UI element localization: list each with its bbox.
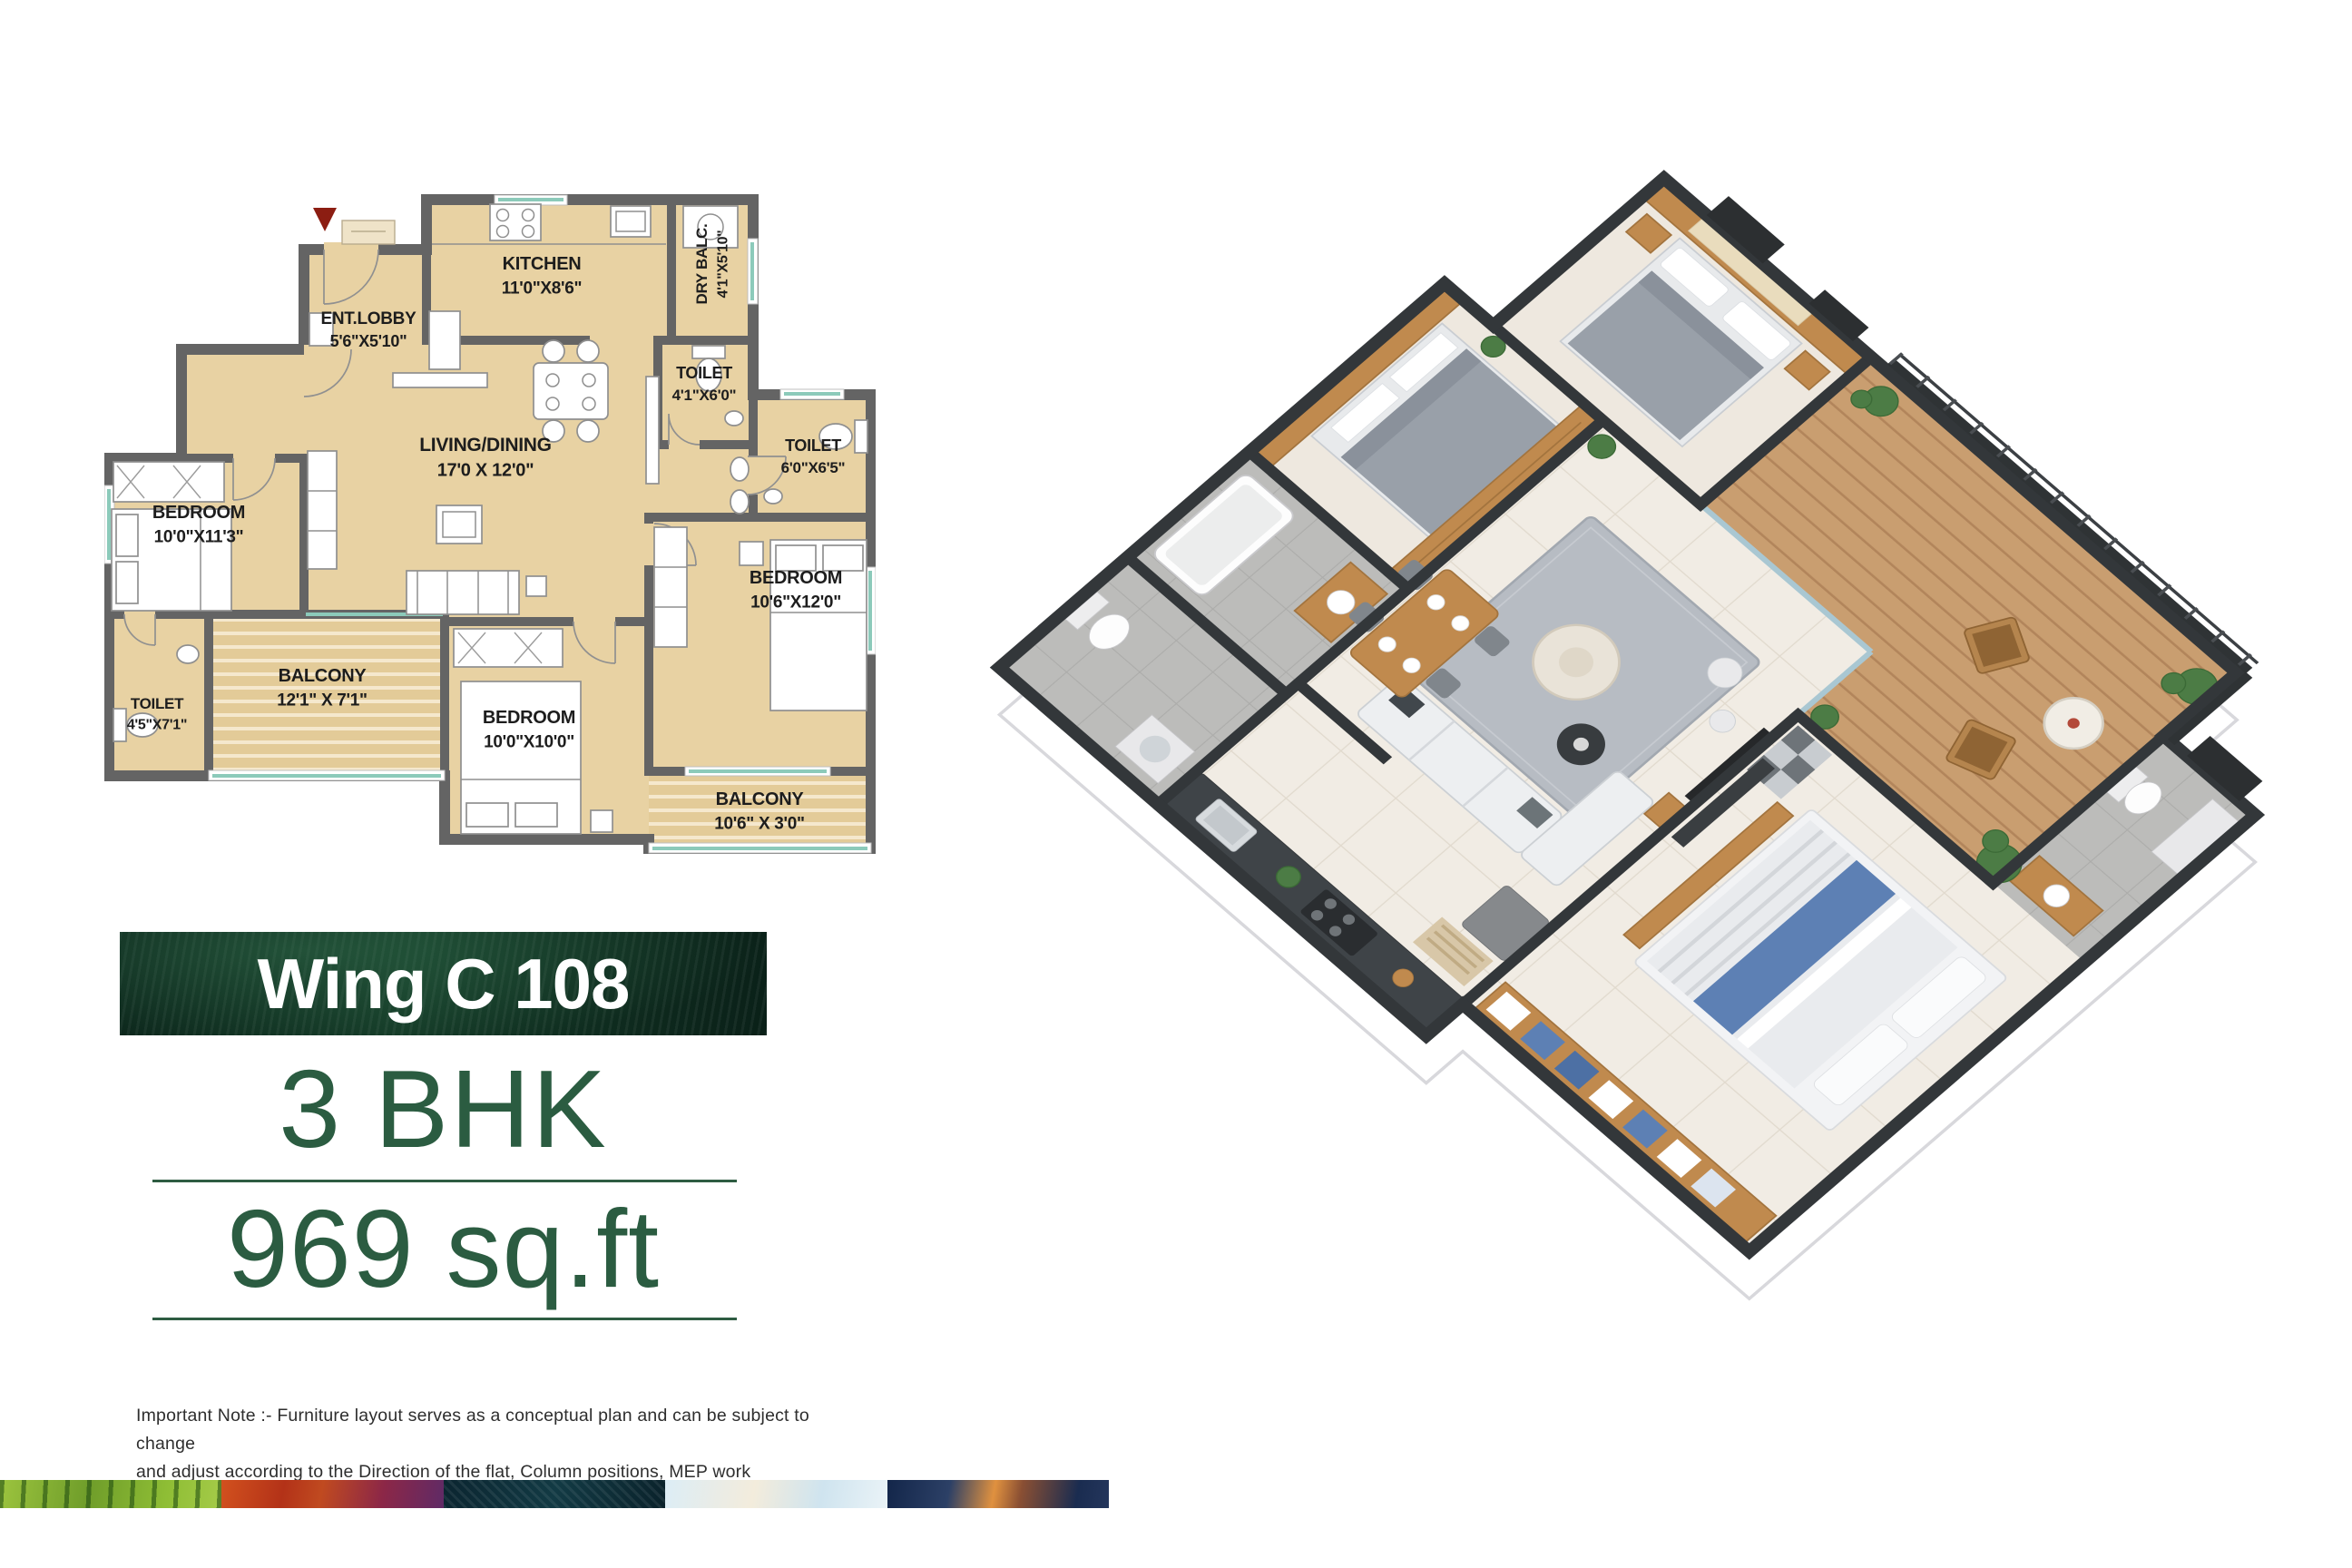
dining-table-icon [534, 363, 608, 419]
note-line-1: Important Note :- Furniture layout serve… [136, 1402, 862, 1458]
render-3d [980, 109, 2352, 1452]
floor-plan: KITCHEN11'0"X8'6"DRY BALC.4'1"X5'10"ENT.… [104, 186, 876, 857]
important-note: Important Note :- Furniture layout serve… [136, 1402, 862, 1485]
strip-image-pale-iridescent [665, 1480, 887, 1508]
unit-area: 969 sq.ft [120, 1185, 767, 1312]
unit-type: 3 BHK [120, 1045, 767, 1172]
unit-banner: Wing C 108 [120, 932, 767, 1035]
strip-image-dark-teal [444, 1480, 665, 1508]
entry-direction-arrow [313, 208, 395, 244]
strip-image-abstract-red-purple [221, 1480, 443, 1508]
sofa-icon [308, 451, 337, 569]
divider-line [152, 1180, 737, 1182]
balcony-deck-right [649, 771, 871, 848]
tv-unit-icon [646, 377, 659, 484]
divider-line [152, 1318, 737, 1320]
brochure-page: KITCHEN11'0"X8'6"DRY BALC.4'1"X5'10"ENT.… [0, 0, 2352, 1568]
footer-image-strip [0, 1480, 1109, 1508]
fridge-icon [429, 311, 460, 369]
unit-banner-text: Wing C 108 [258, 943, 630, 1025]
strip-image-navy-sunset [887, 1480, 1109, 1508]
strip-image-foliage-green [0, 1480, 221, 1508]
render-top-view [1000, 117, 2351, 1283]
